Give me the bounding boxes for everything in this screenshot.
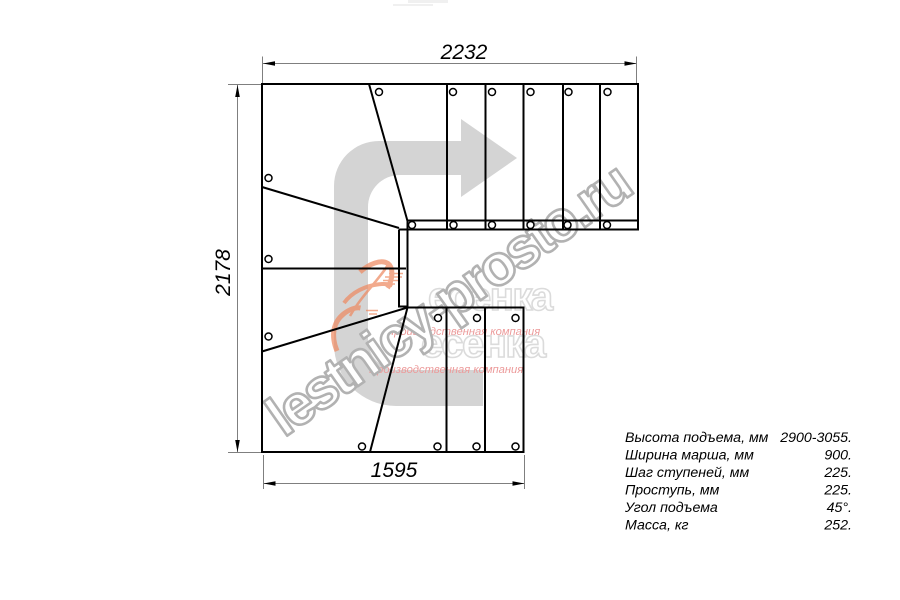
svg-text:252.: 252. [823,518,852,534]
svg-text:225.: 225. [823,465,852,481]
svg-text:Угол подъема: Угол подъема [624,500,718,516]
svg-text:Ширина марша, мм: Ширина марша, мм [625,448,754,464]
svg-text:2178: 2178 [212,249,235,297]
svg-text:225.: 225. [823,483,852,499]
svg-text:2900-3055.: 2900-3055. [779,430,852,446]
svg-text:1595: 1595 [371,459,418,482]
svg-text:Проступь, мм: Проступь, мм [625,483,720,499]
svg-text:2232: 2232 [440,41,488,64]
svg-text:900.: 900. [824,448,852,464]
svg-text:Масса, кг: Масса, кг [625,518,689,534]
svg-text:Высота подъема, мм: Высота подъема, мм [625,430,769,446]
svg-text:Шаг ступеней, мм: Шаг ступеней, мм [625,465,749,481]
svg-text:45°.: 45°. [827,500,852,516]
